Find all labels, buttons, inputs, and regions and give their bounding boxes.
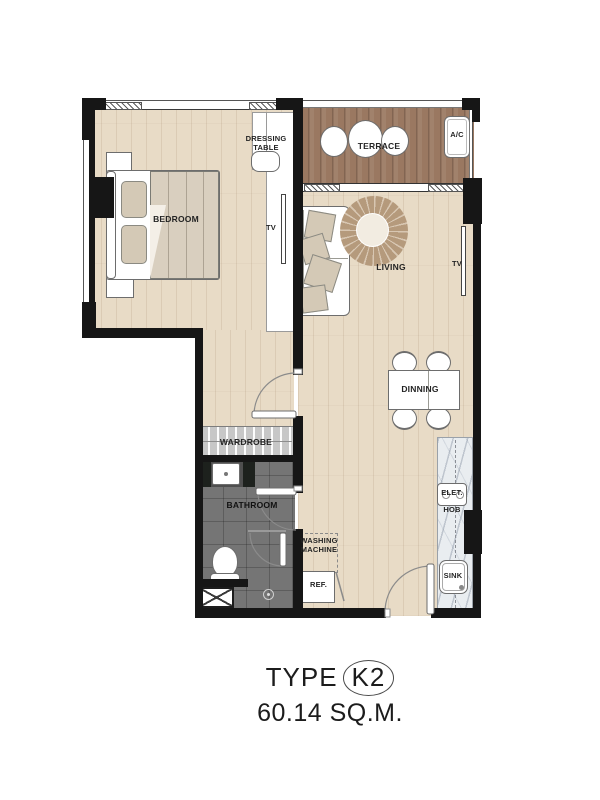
vanity-plant bbox=[243, 461, 255, 487]
tv-living-label: TV bbox=[446, 260, 468, 269]
floor-plan: BEDROOM DRESSING TABLE TV TERRACE A/C LI… bbox=[0, 0, 600, 800]
bedroom-label: BEDROOM bbox=[144, 214, 208, 224]
hob-label-line1: ELET. bbox=[437, 489, 467, 498]
bathroom-sink-drain bbox=[224, 472, 228, 476]
pillow bbox=[121, 225, 147, 264]
sink-faucet bbox=[459, 585, 464, 590]
tv-bedroom-label: TV bbox=[260, 224, 282, 233]
sink-label: SINK bbox=[437, 572, 469, 581]
wardrobe-label: WARDROBE bbox=[214, 437, 278, 447]
window-hatch bbox=[428, 184, 464, 192]
living-label: LIVING bbox=[364, 262, 418, 272]
hob-label-line2: HOB bbox=[437, 506, 467, 515]
dining-chair bbox=[392, 407, 417, 430]
terrace-chair bbox=[320, 126, 348, 157]
rug-center bbox=[356, 213, 389, 247]
wall-segment bbox=[89, 110, 95, 332]
wall-segment bbox=[195, 608, 386, 618]
wall-segment bbox=[82, 328, 203, 338]
plan-title-block: TYPEK2 60.14 SQ.M. bbox=[170, 660, 490, 728]
type-code-badge: K2 bbox=[343, 660, 395, 696]
wall-pier bbox=[92, 177, 114, 218]
wall-segment bbox=[198, 579, 248, 587]
wall-segment bbox=[472, 98, 480, 122]
terrace-label: TERRACE bbox=[350, 141, 408, 151]
dining-chair bbox=[426, 407, 451, 430]
ac-label: A/C bbox=[444, 131, 470, 140]
wall-column bbox=[464, 510, 482, 554]
terrace-table bbox=[348, 120, 383, 158]
bathroom-label: BATHROOM bbox=[221, 500, 283, 510]
nightstand bbox=[106, 278, 134, 298]
pillow bbox=[121, 181, 147, 218]
wall-segment bbox=[293, 196, 303, 375]
shower-drain-dot bbox=[267, 593, 270, 596]
wall-segment bbox=[195, 455, 303, 462]
dressing-stool bbox=[251, 151, 280, 172]
terrace-railing bbox=[303, 100, 464, 108]
wall-segment bbox=[195, 328, 203, 618]
shower-partition bbox=[248, 530, 286, 532]
type-label: TYPE bbox=[266, 662, 338, 692]
wall-segment bbox=[293, 98, 303, 198]
plan-type-line: TYPEK2 bbox=[170, 660, 490, 696]
wall-segment bbox=[431, 608, 481, 618]
refrigerator-label: REF. bbox=[302, 581, 335, 590]
vanity-plant bbox=[202, 461, 211, 487]
shaft-symbol bbox=[199, 587, 234, 608]
sofa-cushion bbox=[299, 284, 328, 313]
dining-label: DINNING bbox=[394, 384, 446, 394]
washing-machine-label: WASHING MACHINE bbox=[297, 537, 341, 555]
dressing-table-label: DRESSING TABLE bbox=[240, 135, 292, 153]
nightstand bbox=[106, 152, 132, 172]
plan-area-line: 60.14 SQ.M. bbox=[170, 699, 490, 728]
window-hatch bbox=[304, 184, 340, 192]
